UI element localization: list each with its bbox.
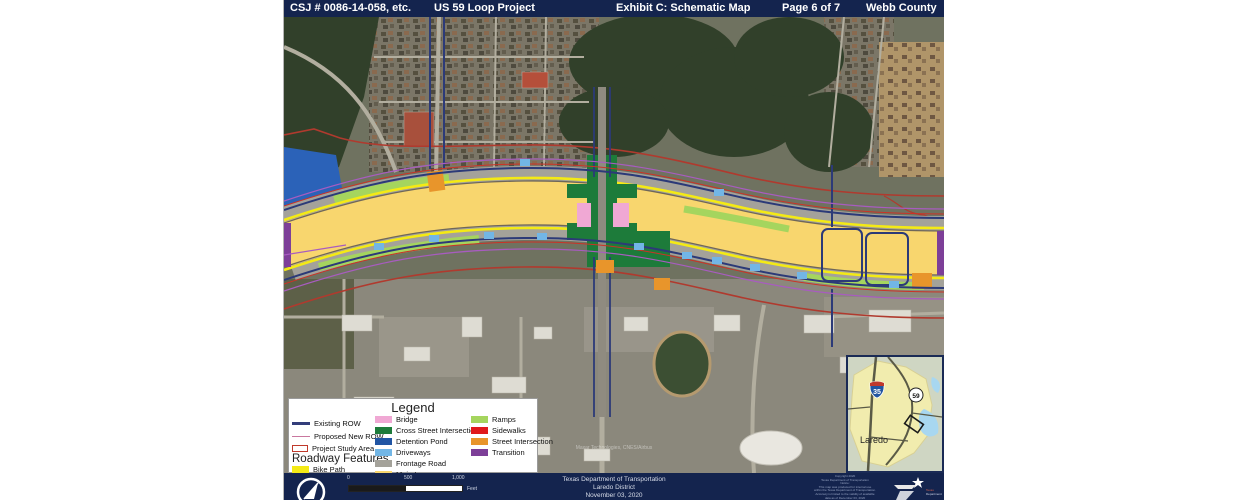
driveways-swatch: [375, 449, 392, 456]
scale-unit-label: Feet: [467, 486, 477, 492]
legend-item-detention-pond: Detention Pond: [375, 437, 448, 446]
scale-tick-1000: 1,000: [452, 475, 465, 481]
legend-item-driveways: Driveways: [375, 448, 431, 457]
legend-item-street-intersection: Street Intersection: [471, 437, 553, 446]
cross-street-swatch: [375, 427, 392, 434]
txdot-logo: Texas Department of Transportation: [890, 473, 942, 500]
transition-swatch: [471, 449, 488, 456]
legend-item-bridge: Bridge: [375, 415, 418, 424]
legend-item-proposed-row: Proposed New ROW: [292, 432, 384, 441]
copyright-block: Copyright 2020 Texas Department of Trans…: [789, 475, 901, 500]
legend-item-sidewalks: Sidewalks: [471, 426, 526, 435]
title-bar: CSJ # 0086-14-058, etc. US 59 Loop Proje…: [284, 0, 944, 17]
svg-text:59: 59: [912, 393, 920, 400]
legend-item-existing-row: Existing ROW: [292, 419, 361, 428]
existing-row-swatch: [292, 422, 310, 425]
legend-item-cross-street: Cross Street Intersections: [375, 426, 482, 435]
scale-tick-500: 500: [404, 475, 412, 481]
district-name: Laredo District: [514, 484, 714, 492]
us-59-shield: 59: [909, 388, 923, 402]
exhibit-sheet: CSJ # 0086-14-058, etc. US 59 Loop Proje…: [283, 0, 943, 500]
proposed-row-swatch: [292, 436, 310, 437]
svg-text:35: 35: [873, 389, 881, 396]
inset-city-label: Laredo: [860, 435, 888, 445]
new-development-area: [879, 42, 944, 177]
detention-pond-swatch: [375, 438, 392, 445]
imagery-attribution: Maxar Technologies, CNES/Airbus: [576, 445, 653, 451]
project-title: US 59 Loop Project: [434, 0, 535, 17]
bike-path-swatch: [292, 466, 309, 473]
residential-area-north: [369, 17, 599, 172]
scale-bar: [348, 485, 463, 492]
csj-number: CSJ # 0086-14-058, etc.: [290, 0, 411, 17]
study-area-swatch: [292, 445, 308, 452]
ramps-swatch: [471, 416, 488, 423]
legend-title: Legend: [289, 400, 537, 415]
page-indicator: Page 6 of 7: [782, 0, 840, 17]
north-arrow-icon: [284, 473, 340, 500]
frontage-road-swatch: [375, 460, 392, 467]
legend-item-transition: Transition: [471, 448, 525, 457]
bridge-feature: [577, 203, 591, 227]
street-intersection-swatch: [471, 438, 488, 445]
scale-tick-0: 0: [347, 475, 350, 481]
inset-map-canvas: 35 59 Laredo: [848, 357, 942, 471]
county-label: Webb County: [866, 0, 937, 17]
exhibit-title: Exhibit C: Schematic Map: [616, 0, 750, 17]
legend-item-study-area: Project Study Area: [292, 444, 374, 453]
bridge-feature: [613, 203, 629, 227]
pond: [654, 332, 710, 396]
map-date: November 03, 2020: [514, 492, 714, 500]
legend-panel: Legend Existing ROW Proposed New ROW Pro…: [288, 398, 538, 473]
agency-name: Texas Department of Transportation: [514, 476, 714, 484]
arena-building: [740, 431, 802, 465]
footer-agency-block: Texas Department of Transportation Lared…: [514, 476, 714, 500]
legend-item-ramps: Ramps: [471, 415, 516, 424]
bridge-swatch: [375, 416, 392, 423]
inset-location-map[interactable]: 35 59 Laredo: [846, 355, 944, 473]
svg-text:Department of Transportation: Department of Transportation: [926, 492, 942, 496]
sidewalks-swatch: [471, 427, 488, 434]
footer-bar: 0 500 1,000 Feet Texas Department of Tra…: [284, 473, 944, 500]
legend-item-frontage-road: Frontage Road: [375, 459, 446, 468]
